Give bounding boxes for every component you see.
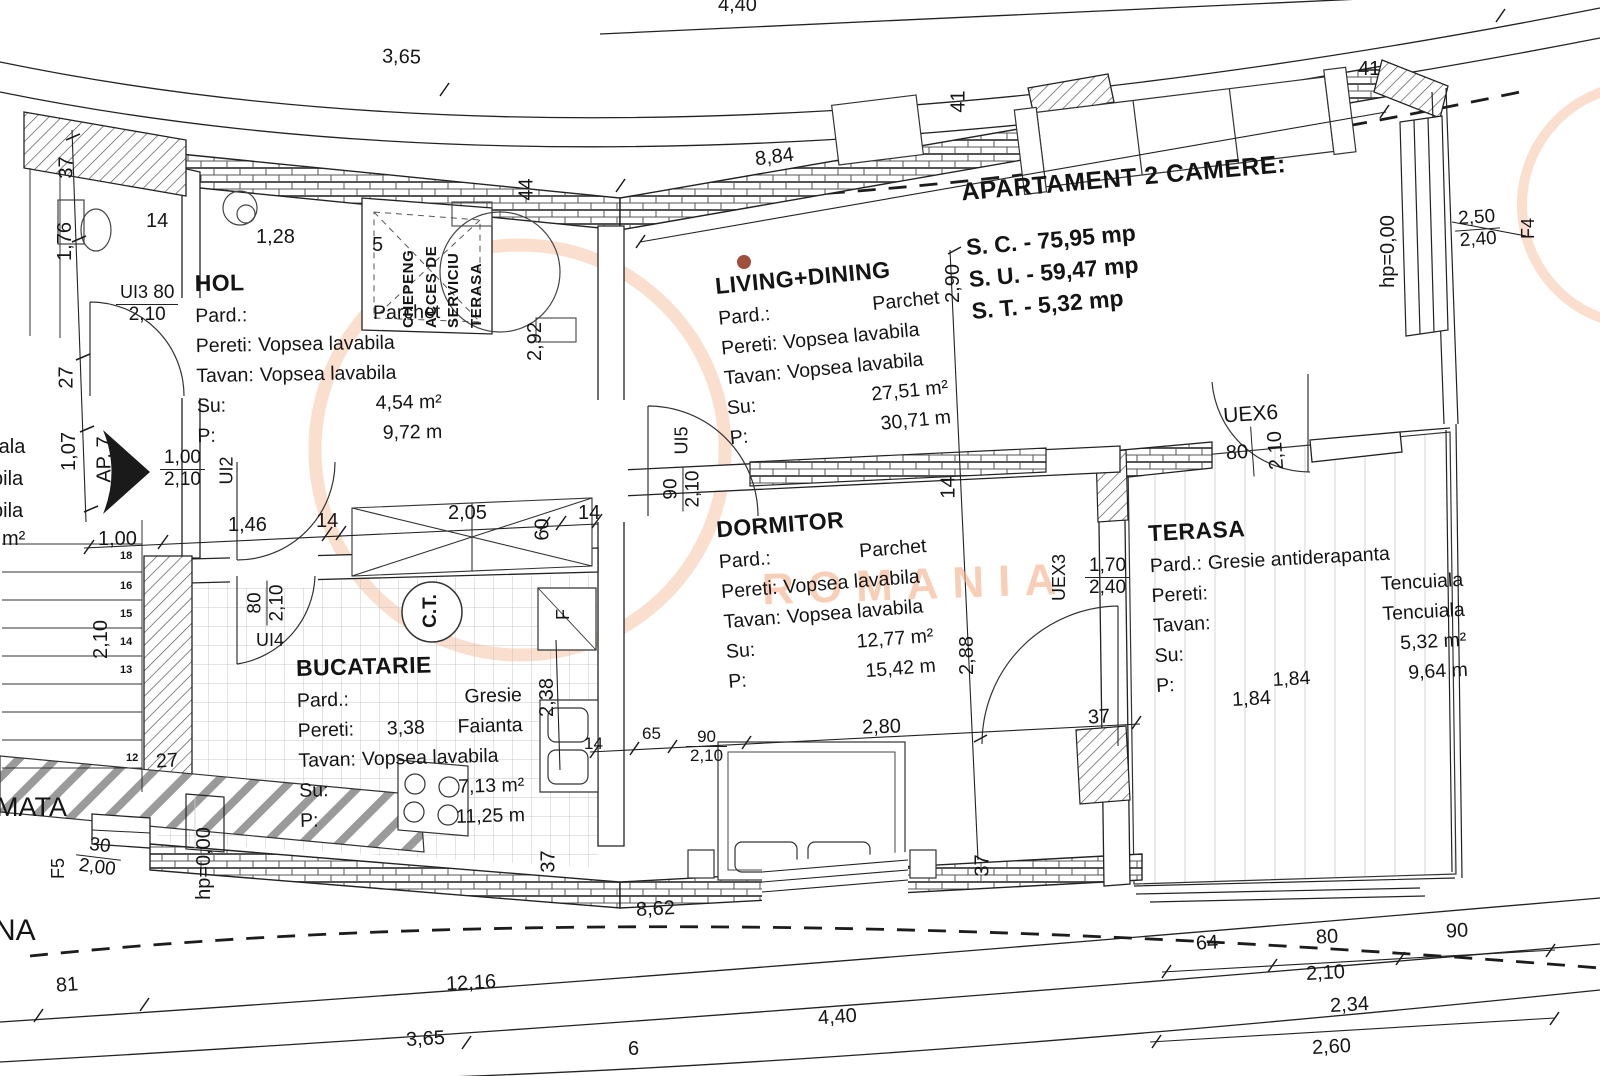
dimension-label: 2,38 [536, 678, 559, 717]
red-dot-marker [737, 255, 751, 269]
door-height: 2,10 [683, 467, 704, 512]
spec-label: P: [727, 670, 747, 694]
spec-label: Pereti: [196, 334, 253, 358]
door-height: 2,10 [1264, 430, 1290, 470]
spec-value: Vopsea lavabila [362, 745, 499, 772]
dimension-label: 2,34 [1329, 993, 1369, 1018]
door-tag-ui2: 1,00 2,10 [160, 448, 205, 490]
dimension-label: 2,10 [686, 747, 727, 765]
spec-value: 27,51 m² [870, 376, 949, 406]
spec-label: Pard.: [1149, 553, 1202, 579]
spec-label: Su: [197, 395, 227, 419]
dimension-label: 14 [578, 502, 600, 525]
cutoff-text-4: m² [2, 528, 25, 551]
spec-value: Gresie antiderapanta [1207, 543, 1390, 576]
door-tag-uex6: UEX6 802,10 [1223, 400, 1298, 479]
apartment-number-label: AP. 7 [94, 436, 117, 482]
spec-label: Tavan: [298, 748, 356, 772]
chepeng-line: SERVICIU [443, 246, 466, 328]
spec-value: Parchet [871, 287, 940, 316]
spec-value: Tencuiala [1380, 569, 1463, 596]
room-label-terasa: TERASA Pard.:Gresie antiderapanta Pereti… [1148, 504, 1469, 698]
dimension-label: 65 [642, 724, 661, 744]
dimension-label: 2,10 [1305, 961, 1345, 986]
dimension-label: 14 [938, 476, 961, 498]
spec-label: Pereti: [720, 577, 778, 604]
door-id: UI3 [120, 282, 148, 302]
dimension-label: 37 [972, 854, 995, 876]
dimension-label: 1,00 [98, 528, 137, 551]
spec-value: Vopsea lavabila [782, 319, 920, 355]
room-label-bucatarie: BUCATARIE Pard.:Gresie Pereti:3,38Faiant… [296, 649, 526, 833]
door-width: 80 [153, 282, 174, 303]
dimension-label: 4,40 [817, 1005, 857, 1031]
spec-value: 12,77 m² [856, 625, 935, 654]
dimension-label: 90 [686, 728, 727, 747]
stair-step-number: 13 [120, 664, 132, 676]
window-tag-f4: 2,50 2,40 [1454, 206, 1502, 251]
chepeng-line: CHEPENG [398, 246, 421, 328]
dimension-label: 44 [516, 178, 539, 200]
level-label-left: hp=0,00 [193, 827, 216, 900]
boiler-label: C.T. [420, 594, 442, 628]
fridge-label: F [553, 609, 574, 620]
spec-label: Pereti: [1151, 582, 1208, 608]
chepeng-note: CHEPENG ACCES DE SERVICIU TERASA [398, 246, 488, 328]
spec-label: Pard.: [718, 547, 772, 574]
fraction-divider [1250, 427, 1254, 477]
room-label-living: LIVING+DINING Pard.:Parchet Pereti:Vopse… [714, 252, 952, 450]
dimension-label: 2,90 [942, 264, 965, 303]
window-tag-f5: 30 2,00 [74, 833, 124, 880]
dimension-label: 12,16 [445, 971, 496, 997]
spec-label: Pard.: [717, 303, 771, 331]
dimension-label: 2,60 [1311, 1035, 1351, 1060]
spec-value: 5,32 m² [1400, 629, 1467, 655]
chepeng-line: TERASA [466, 246, 489, 328]
spec-label: Pard.: [297, 689, 350, 713]
cutoff-text-1: rala [0, 436, 25, 459]
stair-step-number: 15 [120, 608, 132, 620]
dimension-label: 41 [1358, 58, 1380, 81]
door-height: 2,10 [267, 581, 288, 626]
window-height: 2,40 [1455, 228, 1501, 252]
spec-value: Parchet [858, 535, 927, 563]
dimension-label: 14 [146, 210, 168, 233]
spec-label: Pard.: [195, 304, 247, 328]
spec-value: 11,25 m [456, 804, 526, 829]
door-width: 90 [661, 467, 683, 512]
dimension-label: 8,62 [635, 897, 675, 922]
dimension-label: 3,65 [405, 1027, 445, 1052]
dimension-label: 2,80 [862, 715, 902, 739]
spec-value: Vopsea lavabila [258, 332, 395, 357]
door-height: 2,40 [1085, 578, 1130, 599]
cutoff-text-na: NA [0, 914, 36, 948]
dimension-label: 1,07 [58, 432, 81, 471]
door-width: 80 [1225, 440, 1249, 464]
spec-label: Su: [725, 639, 756, 664]
dimension-label: 6 [628, 1038, 639, 1061]
door-id-ui5: UI5 [672, 426, 693, 454]
cutoff-text-2: bila [0, 468, 23, 491]
dimension-label: 81 [55, 973, 79, 997]
dimension-label: 2,10 [90, 620, 113, 659]
spec-value: Tencuiala [1382, 599, 1465, 626]
chepeng-line: ACCES DE [421, 246, 444, 328]
spec-value: Vopsea lavabila [260, 362, 397, 387]
door-height: 2,10 [116, 305, 178, 326]
dimension-label: 1,46 [228, 514, 267, 537]
room-label-dormitor: DORMITOR Pard.:Parchet Pereti:Vopsea lav… [715, 500, 936, 694]
door-tag-ui3: UI3 80 2,10 [116, 283, 178, 325]
door-tag-ui4: 80 2,10 [245, 581, 287, 626]
dimension-fraction: 90 2,10 [686, 728, 727, 766]
spec-value: 9,64 m [1408, 659, 1469, 685]
spec-value: Vopsea lavabila [786, 595, 924, 629]
dimension-label: 41 [948, 90, 971, 112]
door-id: UEX3 [1049, 554, 1070, 601]
spec-label: Su: [299, 779, 329, 803]
door-height: 2,10 [160, 470, 205, 491]
armchair [832, 95, 924, 165]
dimension-label: 60 [532, 518, 555, 540]
dimension-label: 14 [584, 734, 603, 754]
dimension-label: 80 [1315, 925, 1338, 949]
cutoff-text-3: bila [0, 500, 23, 523]
dimension-label: 3,65 [382, 45, 422, 69]
dimension-label: 37 [56, 156, 79, 178]
stair-step-number: 12 [126, 752, 138, 764]
spec-label: Su: [1154, 644, 1184, 669]
dimension-label: 3,38 [387, 717, 426, 741]
dimension-label: 37 [538, 850, 561, 872]
door-width: 80 [245, 581, 267, 626]
door-id-ui4: UI4 [256, 630, 284, 651]
dimension-label: 14 [316, 510, 338, 533]
door-width: 1,70 [1085, 556, 1130, 578]
spec-value: Faianta [457, 714, 523, 739]
dimension-label: 27 [155, 749, 179, 773]
spec-label: Tavan: [723, 607, 782, 634]
level-label-right: hp=0,00 [1377, 215, 1400, 288]
dimension-label: 4,40 [718, 0, 757, 17]
spec-label: Su: [726, 395, 757, 421]
dimension-label: 8,84 [754, 144, 795, 172]
window-id-f4: F4 [1518, 218, 1539, 239]
dimension-label: 2,92 [524, 322, 547, 361]
spec-value: 7,13 m² [458, 774, 525, 799]
apartment-title-block: APARTAMENT 2 CAMERE: S. C. - 75,95 mp S.… [960, 150, 1297, 327]
spec-label: P: [197, 425, 216, 448]
stair-step-number: 16 [120, 580, 132, 592]
stair-step-number: 14 [120, 636, 132, 648]
spec-value: 4,54 m² [376, 391, 443, 415]
dimension-label: 1,28 [256, 226, 295, 249]
room-title: BUCATARIE [296, 649, 522, 682]
spec-value: Vopsea lavabila [786, 348, 924, 384]
spec-label: Tavan: [1153, 612, 1212, 638]
spec-value: 9,72 m [383, 421, 443, 445]
spec-label: Pereti: [297, 718, 354, 742]
dimension-label: 64 [1195, 931, 1218, 955]
stair-step-number: 18 [120, 550, 132, 562]
dimension-label: 90 [1445, 919, 1468, 943]
door-tag-ui5: 90 2,10 [661, 467, 703, 512]
spec-value: Gresie [464, 684, 522, 708]
spec-value: Vopsea lavabila [783, 566, 921, 600]
door-id-ui2: UI2 [217, 456, 238, 484]
dimension-label: 1,76 [54, 222, 77, 261]
cutoff-text-mata: MATA [0, 792, 67, 823]
dimension-label: 27 [56, 366, 79, 388]
dimension-label: 2,88 [956, 636, 979, 675]
dimension-label: 37 [1087, 705, 1111, 729]
dimension-label: 2,05 [448, 502, 487, 525]
floor-plan-canvas: ROMANIA HOL Pard.:Parchet Pereti:Vopsea … [0, 0, 1600, 1076]
spec-label: Tavan: [196, 364, 254, 388]
door-tag-uex3: UEX3 1,702,40 [1036, 556, 1130, 598]
dimension-label: 1,84 [1231, 687, 1271, 712]
dimension-label: 5 [372, 234, 383, 257]
spec-label: Tavan: [723, 362, 782, 390]
door-width: 1,00 [160, 448, 205, 470]
spec-label: P: [1156, 674, 1176, 698]
spec-label: P: [300, 809, 319, 832]
window-id-f5: F5 [48, 858, 69, 879]
spec-label: P: [729, 426, 750, 451]
dimension-label: 1,84 [1272, 667, 1311, 692]
spec-label: Pereti: [720, 332, 778, 360]
